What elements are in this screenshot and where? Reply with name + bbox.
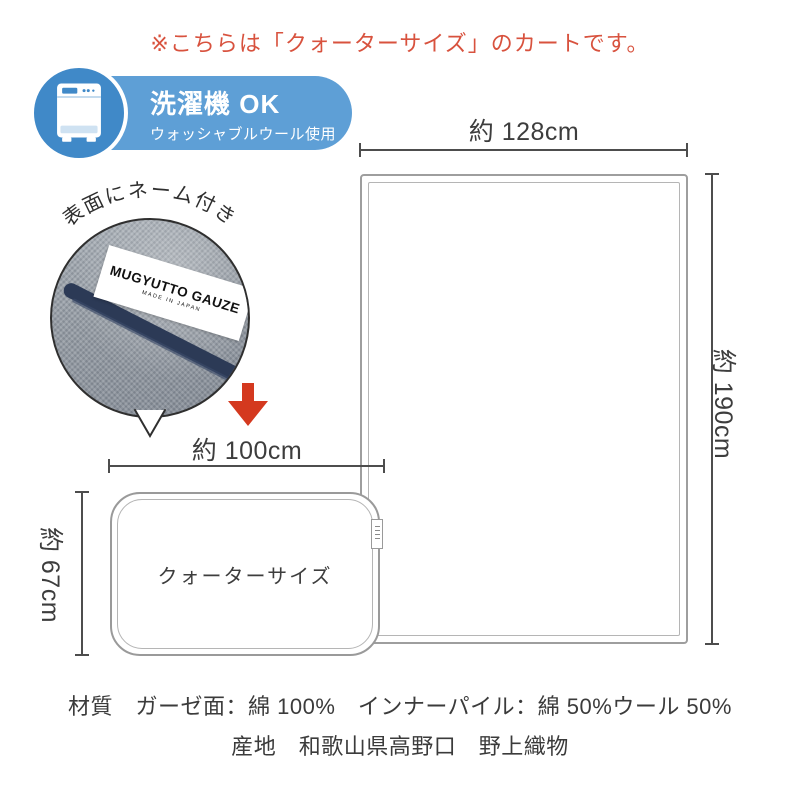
product-size-diagram: ※こちらは「クォーターサイズ」のカートです。 洗濯機 OK ウォッシャブルウール… [0, 0, 800, 800]
washing-machine-icon [52, 81, 106, 145]
quarter-height-dim-line [81, 492, 83, 656]
full-width-dim-line [360, 149, 688, 151]
full-size-blanket-binding [368, 182, 680, 636]
full-size-blanket [360, 174, 688, 644]
dim-tick [75, 491, 89, 493]
dim-tick [108, 459, 110, 473]
quarter-width-label: 約 100cm [109, 431, 385, 467]
full-height-label: 約 190cm [717, 324, 743, 484]
badge-text: 洗濯機 OK ウォッシャブルウール使用 [150, 84, 336, 144]
quarter-height-label: 約 67cm [44, 505, 70, 645]
dim-tick [686, 143, 688, 157]
full-width-label: 約 128cm [360, 112, 688, 148]
material-info: 材質 ガーゼ面：綿 100% インナーパイル：綿 50%ウール 50% [0, 689, 800, 721]
fabric-closeup-circle: MUGYUTTO GAUZE MADE IN JAPAN [50, 218, 250, 418]
dim-tick [705, 643, 719, 645]
quarter-blanket-binding [117, 499, 373, 649]
brand-name: MUGYUTTO GAUZE [108, 262, 241, 316]
down-arrow-icon [227, 383, 269, 427]
brand-name-tag: MUGYUTTO GAUZE MADE IN JAPAN [93, 245, 250, 341]
badge-title: 洗濯機 OK [150, 84, 336, 121]
badge-circle [30, 64, 128, 162]
mini-brand-tag-icon [371, 519, 383, 549]
dim-tick [705, 173, 719, 175]
dim-tick [383, 459, 385, 473]
badge-subtitle: ウォッシャブルウール使用 [150, 123, 336, 144]
quarter-size-notice: ※こちらは「クォーターサイズ」のカートです。 [0, 26, 800, 58]
origin-info: 産地 和歌山県高野口 野上織物 [0, 729, 800, 761]
dim-tick [359, 143, 361, 157]
dim-tick [75, 654, 89, 656]
quarter-width-dim-line [109, 465, 385, 467]
quarter-size-blanket: クォーターサイズ [110, 492, 380, 656]
